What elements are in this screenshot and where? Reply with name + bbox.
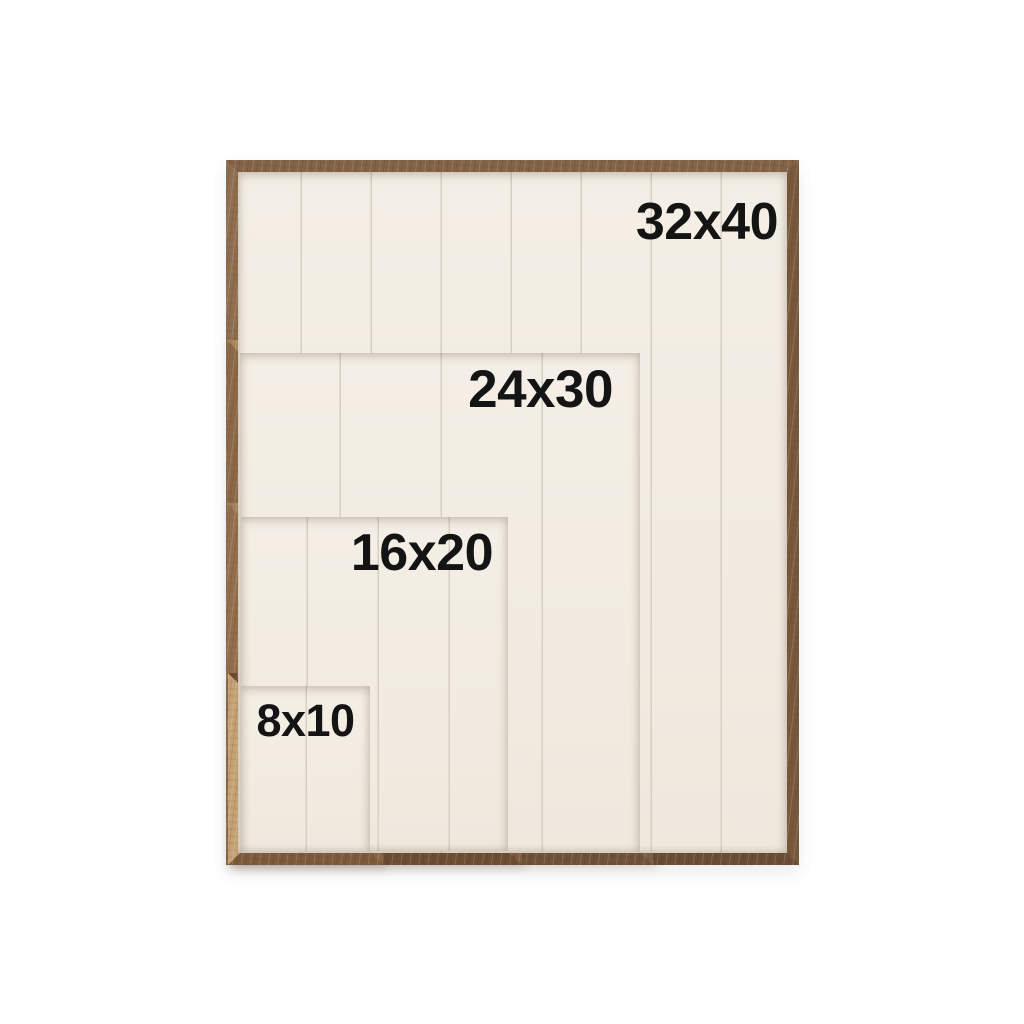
size-label-16x20: 16x20	[351, 527, 493, 579]
size-label-32x40: 32x40	[636, 196, 778, 248]
size-label-24x30: 24x30	[468, 363, 613, 416]
size-label-8x10: 8x10	[241, 698, 370, 743]
frame-size-comparison-canvas: 32x40 24x30 16x20 8x10	[0, 0, 1024, 1024]
frame-8x10: 8x10	[228, 673, 383, 865]
